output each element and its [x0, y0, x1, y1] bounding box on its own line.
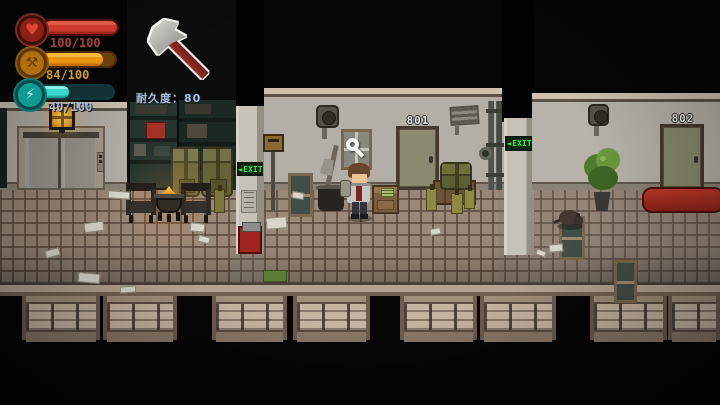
health-bar: [42, 19, 119, 36]
stamina-value: 84/100: [46, 68, 89, 82]
axe-icon: [142, 14, 216, 84]
stamina-bar: [40, 51, 117, 68]
health-value: 100/100: [50, 36, 101, 50]
health-badge: ♥: [17, 15, 47, 45]
energy-value: 40/100: [49, 100, 92, 114]
lightning-icon: ⚡: [25, 88, 35, 102]
hud: ♥ 100/100 ⚒ 84/100 ⚡ 40/100 耐久度：80: [0, 0, 720, 130]
stamina-bar-fill: [42, 53, 103, 66]
energy-badge: ⚡: [15, 80, 45, 110]
durability-text: 耐久度：80: [136, 90, 226, 106]
stamina-badge: ⚒: [17, 48, 47, 78]
energy-bar: [38, 84, 115, 100]
health-bar-fill: [44, 21, 117, 34]
game-viewport: 801 ◄EXIT ◄EXIT: [0, 0, 720, 405]
crossed-tools-icon: ⚒: [26, 56, 39, 70]
heart-icon: ♥: [25, 22, 39, 38]
